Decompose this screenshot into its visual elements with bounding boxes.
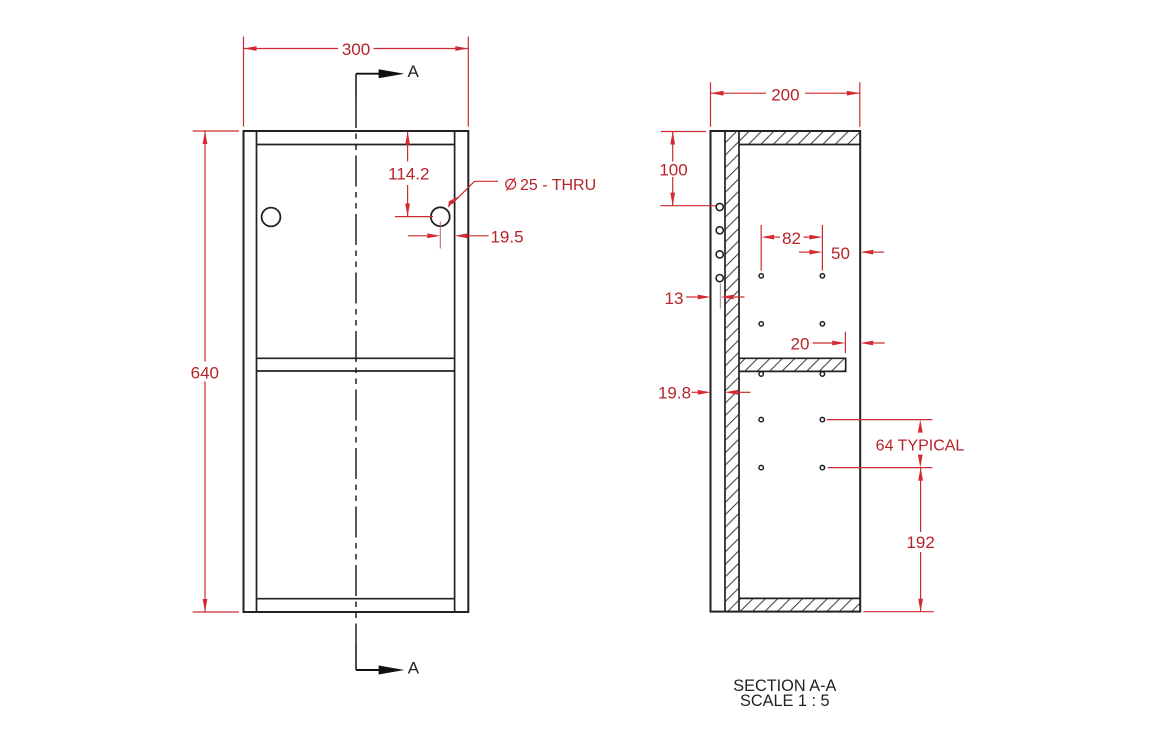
svg-text:200: 200 [771,85,799,104]
svg-text:114.2: 114.2 [388,165,429,184]
svg-text:SCALE 1 : 5: SCALE 1 : 5 [740,692,830,710]
svg-text:64 TYPICAL: 64 TYPICAL [876,437,965,454]
svg-text:20: 20 [791,335,810,354]
svg-text:300: 300 [342,40,370,59]
svg-text:192: 192 [906,533,934,552]
svg-text:50: 50 [831,244,850,263]
svg-text:19.8: 19.8 [658,384,691,403]
svg-text:A: A [408,659,420,678]
svg-text:25 - THRU: 25 - THRU [520,177,596,194]
svg-text:82: 82 [782,229,801,248]
svg-text:100: 100 [659,161,687,180]
svg-text:13: 13 [665,289,684,308]
svg-text:A: A [408,62,420,81]
svg-text:19.5: 19.5 [490,228,523,247]
svg-text:640: 640 [191,364,219,383]
